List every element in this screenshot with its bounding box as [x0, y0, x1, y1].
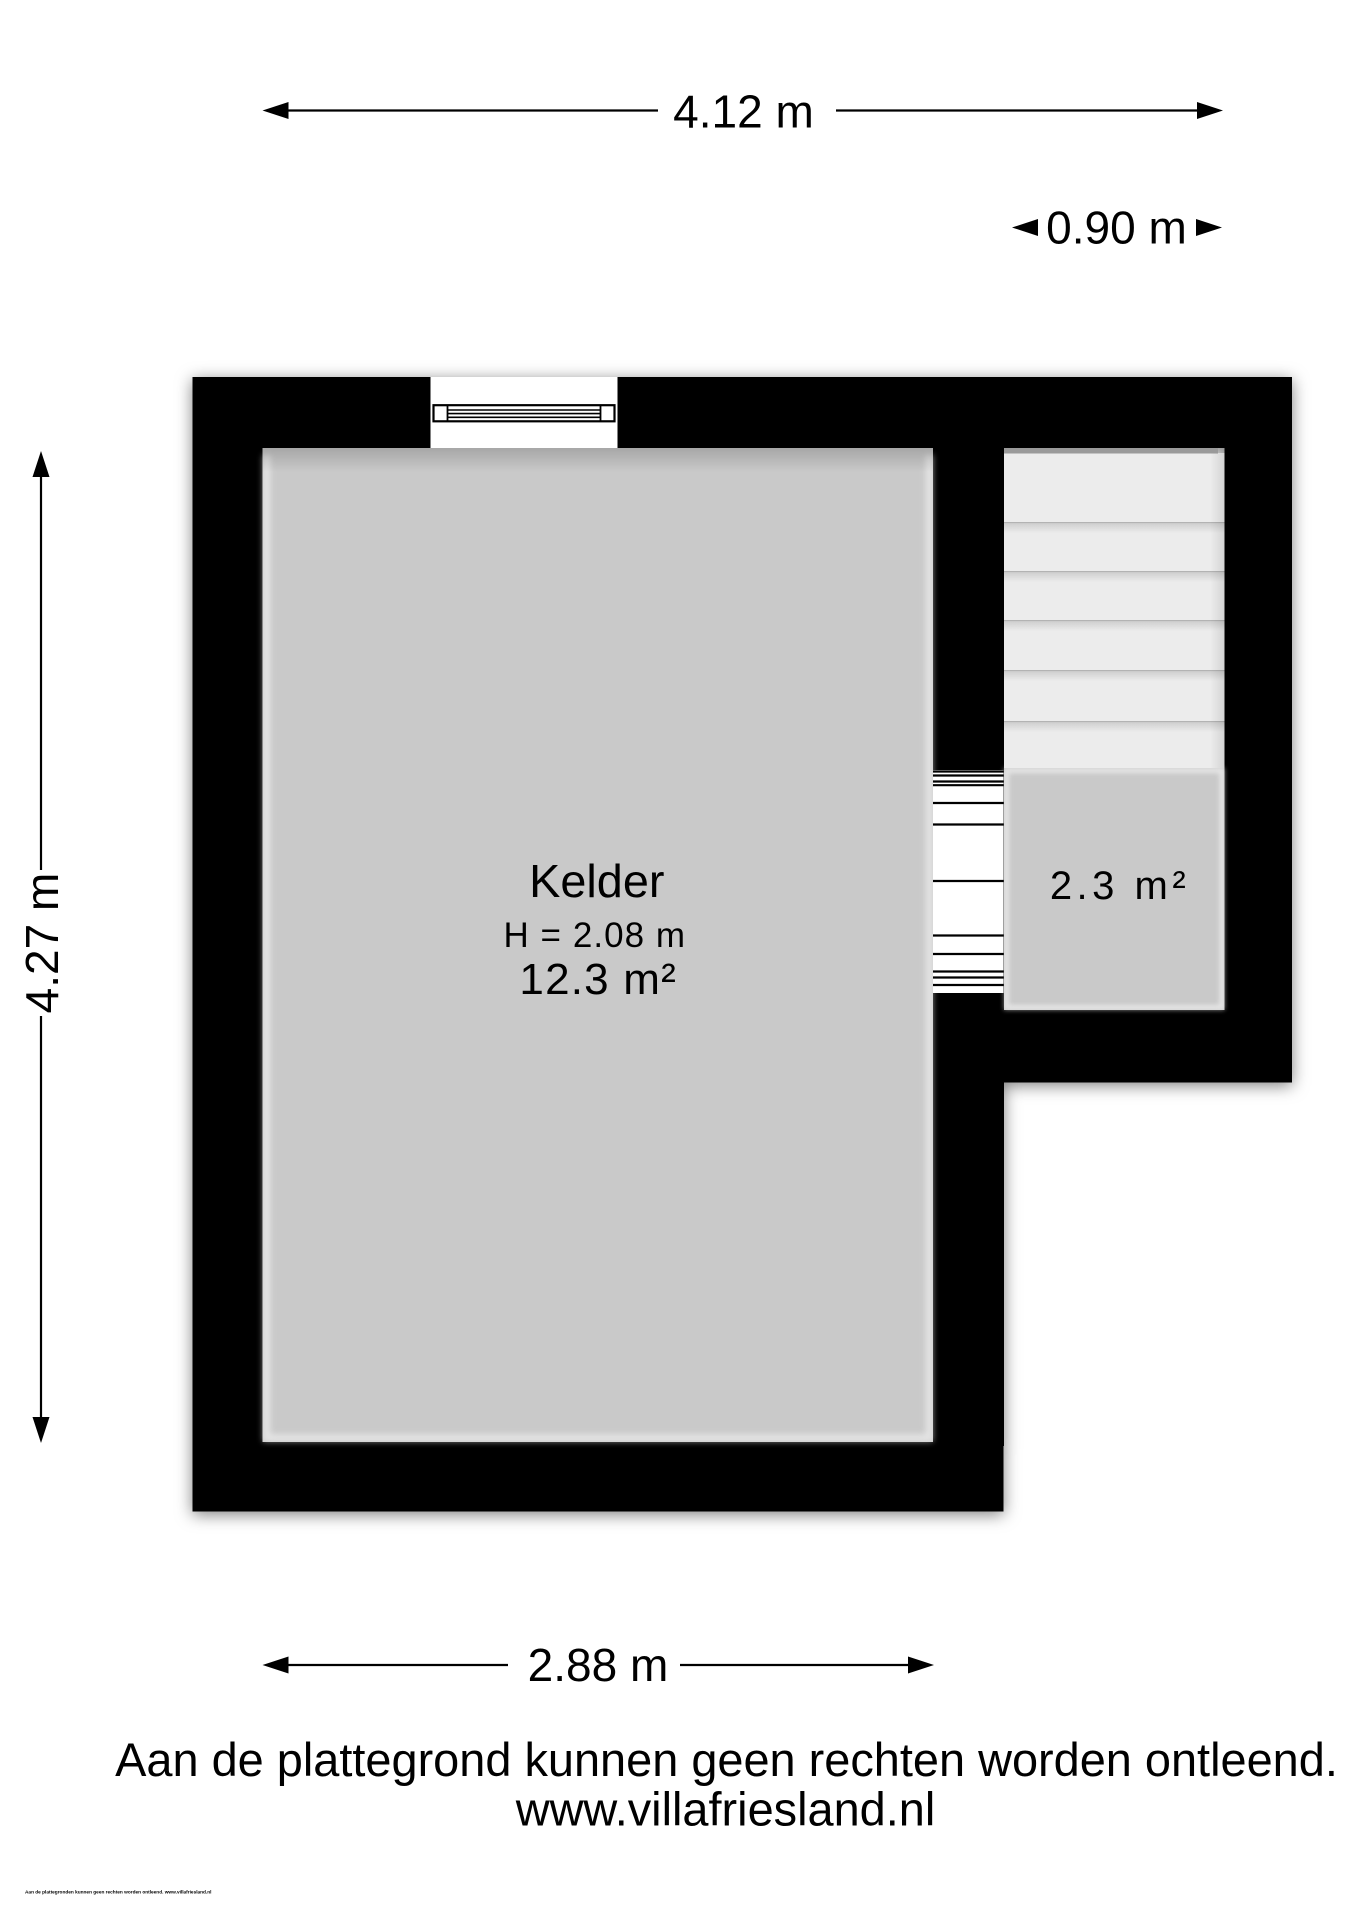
- svg-text:www.villafriesland.nl: www.villafriesland.nl: [515, 1784, 936, 1836]
- svg-text:0.90 m: 0.90 m: [1046, 202, 1187, 254]
- svg-text:2.3 m²: 2.3 m²: [1050, 864, 1190, 908]
- svg-text:12.3 m²: 12.3 m²: [519, 955, 677, 1004]
- svg-text:Aan de plattegrond kunnen geen: Aan de plattegrond kunnen geen rechten w…: [115, 1734, 1338, 1786]
- svg-text:4.27 m: 4.27 m: [16, 873, 68, 1014]
- svg-text:Kelder: Kelder: [529, 855, 664, 907]
- svg-text:Aan de plattegronden kunnen ge: Aan de plattegronden kunnen geen rechten…: [25, 1890, 212, 1896]
- svg-text:H = 2.08 m: H = 2.08 m: [503, 916, 686, 955]
- svg-text:2.88 m: 2.88 m: [528, 1639, 669, 1691]
- svg-text:4.12 m: 4.12 m: [673, 86, 814, 138]
